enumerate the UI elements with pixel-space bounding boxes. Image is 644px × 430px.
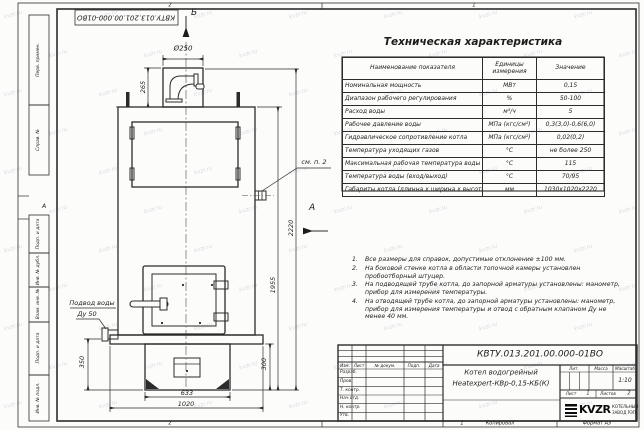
drawing-sheet: kvzr.rukvzr.rukvzr.rukvzr.rukvzr.rukvzr.… xyxy=(0,0,644,430)
dim-chimney-diameter: Ø250 xyxy=(174,46,193,53)
spec-unit: °С xyxy=(483,158,537,171)
spec-row: Диапазон рабочего регулирования%50-100 xyxy=(343,93,605,106)
tb-col-list: Лист xyxy=(354,363,365,367)
spec-value: 50-100 xyxy=(537,93,605,106)
tb-mass-label: Масса xyxy=(594,366,607,370)
kvzr-logo-text: KVZR xyxy=(579,404,610,415)
spec-row: Габариты котла (длинна х ширина х высота… xyxy=(343,184,605,197)
tb-scale-value: 1:10 xyxy=(618,378,631,384)
spec-value: 1030х1020х2220 xyxy=(537,184,605,197)
zone-top-left: 2 xyxy=(168,4,171,9)
callout-water-supply: Подвод воды xyxy=(69,300,114,307)
tb-col-podp: Подп. xyxy=(408,363,421,367)
spec-header-name: Наименование показателя xyxy=(343,58,483,80)
spec-name: Температура воды (вход/выход) xyxy=(343,171,483,184)
title-block-doc-number: КВТУ.013.201.00.000-01ВО xyxy=(477,351,603,360)
zone-bottom-left: 2 xyxy=(168,422,171,427)
spec-row: Температура воды (вход/выход)°С70/95 xyxy=(343,171,605,184)
chimney-elbow xyxy=(170,76,194,100)
spec-value: 0,02(0,2) xyxy=(537,132,605,145)
tb-sheet-label: Лист xyxy=(566,392,577,396)
logo-subtitle-line2: ЗАВОД РЭП xyxy=(612,411,636,415)
note-number: 4. xyxy=(352,298,365,321)
callout-water-dn: Ду 50 xyxy=(77,311,96,318)
spec-unit: °С xyxy=(483,145,537,158)
callout-see-note: см. п. 2 xyxy=(301,159,326,166)
spec-table-title: Техническая характеристика xyxy=(384,37,562,48)
product-name-line2: Heatexpert-КВр-0,15-КБ(К) xyxy=(452,381,549,388)
note-text: На подводящей трубе котла, до запорной а… xyxy=(365,281,626,297)
spec-unit: МВт xyxy=(483,80,537,93)
spec-unit: °С xyxy=(483,171,537,184)
foot-right xyxy=(216,379,229,389)
tb-col-docum: № докум. xyxy=(375,363,396,367)
side-field: Подп. и дата xyxy=(37,333,42,364)
spec-row: Номинальная мощностьМВт0,15 xyxy=(343,80,605,93)
tb-sign-row: Н. контр. xyxy=(340,406,361,410)
dim-pedestal-height: 300 xyxy=(261,358,268,370)
spec-name: Температура уходящих газов xyxy=(343,145,483,158)
tb-scale-label: Масштаб xyxy=(615,366,635,370)
tb-col-izm: Изм. xyxy=(340,363,350,367)
tb-sheets-value: 2 xyxy=(627,392,630,397)
spec-name: Диапазон рабочего регулирования xyxy=(343,93,483,106)
zone-top-right: 1 xyxy=(472,4,475,9)
side-field: Подп. и дата xyxy=(37,219,42,250)
tb-sheets-label: Листов xyxy=(600,392,616,396)
tb-sheet-value: 1 xyxy=(586,392,589,397)
spec-row: Температура уходящих газов°Сне более 250 xyxy=(343,145,605,158)
spec-name: Расход воды xyxy=(343,106,483,119)
kvzr-logo-icon xyxy=(565,404,577,417)
spec-unit: % xyxy=(483,93,537,106)
spec-row: Максимальная рабочая температура воды°С1… xyxy=(343,158,605,171)
spec-value: 115 xyxy=(537,158,605,171)
note-item: 3.На подводящей трубе котла, до запорной… xyxy=(352,281,626,297)
note-text: Все размеры для справок, допустимые откл… xyxy=(365,256,566,264)
note-text: На отводящей трубе котла, до запорной ар… xyxy=(365,298,626,321)
product-name-line1: Котел водогрейный xyxy=(464,370,538,377)
zone-bottom-right: 1 xyxy=(460,422,463,427)
spec-header-row: Наименование показателя Единицы измерени… xyxy=(343,58,605,80)
centerlines xyxy=(186,42,274,394)
footer-format: Формат А3 xyxy=(583,422,611,427)
dim-chimney-height: 265 xyxy=(140,81,147,93)
lifting-pin-left xyxy=(126,92,130,107)
spec-unit: мм xyxy=(483,184,537,197)
spec-row: Гидравлическое сопротивление котлаМПа (к… xyxy=(343,132,605,145)
tb-sign-row: Разраб. xyxy=(340,371,357,375)
boiler-outline xyxy=(102,68,266,390)
spec-table: Наименование показателя Единицы измерени… xyxy=(342,57,605,197)
notes-block: 1.Все размеры для справок, допустимые от… xyxy=(352,256,626,322)
note-text: На боковой стенке котла в области топочн… xyxy=(365,265,626,281)
spec-row: Расход водым³/ч5 xyxy=(343,106,605,119)
spec-value: 0,15 xyxy=(537,80,605,93)
spec-name: Максимальная рабочая температура воды xyxy=(343,158,483,171)
tb-sign-row: Нач.отд. xyxy=(340,397,359,401)
note-item: 1.Все размеры для справок, допустимые от… xyxy=(352,256,626,264)
side-field: Взам. инв. № xyxy=(37,289,42,320)
spec-value: 5 xyxy=(537,106,605,119)
spec-unit: МПа (кгс/см²) xyxy=(483,119,537,132)
note-item: 4.На отводящей трубе котла, до запорной … xyxy=(352,298,626,321)
dim-base-width: 1020 xyxy=(178,401,195,408)
side-field: Инв. № дубл. xyxy=(37,255,42,286)
dim-pedestal-width: 633 xyxy=(181,390,193,397)
doc-number-top: КВТУ.013.201.00.000-01ВО xyxy=(77,14,175,21)
dim-body-height: 1955 xyxy=(270,277,277,294)
side-field: Инв. № подл. xyxy=(37,382,42,413)
tb-sign-row: Т. контр. xyxy=(340,389,360,393)
side-field: Справ. № xyxy=(37,129,42,151)
spec-unit: МПа (кгс/см²) xyxy=(483,132,537,145)
logo-subtitle-line1: КОТЕЛЬНЫЙ xyxy=(612,405,638,409)
spec-name: Номинальная мощность xyxy=(343,80,483,93)
spec-row: Рабочее давление водыМПа (кгс/см²)0,3(3,… xyxy=(343,119,605,132)
leaders xyxy=(70,16,331,329)
tb-lit-label: Лит. xyxy=(569,366,579,370)
spec-name: Рабочее давление воды xyxy=(343,119,483,132)
spec-unit: м³/ч xyxy=(483,106,537,119)
note-number: 2. xyxy=(352,265,365,281)
tb-sign-row: Утв. xyxy=(340,414,349,418)
spec-value: не более 250 xyxy=(537,145,605,158)
tb-sign-row: Пров. xyxy=(340,380,353,384)
side-field: Перв. примен. xyxy=(37,43,42,77)
spec-header-value: Значение xyxy=(537,58,605,80)
footer-copied: Копировал xyxy=(486,422,515,427)
view-b-label: Б xyxy=(191,9,197,18)
spec-value: 0,3(3,0)-0,6(6,0) xyxy=(537,119,605,132)
note-number: 3. xyxy=(352,281,365,297)
note-item: 2.На боковой стенке котла в области топо… xyxy=(352,265,626,281)
tb-col-data: Дата xyxy=(429,363,440,367)
dim-stub-height: 350 xyxy=(79,356,86,368)
note-number: 1. xyxy=(352,256,365,264)
view-a-label: А xyxy=(309,204,315,213)
spec-value: 70/95 xyxy=(537,171,605,184)
spec-name: Гидравлическое сопротивление котла xyxy=(343,132,483,145)
spec-header-unit: Единицы измерения xyxy=(483,58,537,80)
zone-side-letter: А xyxy=(42,204,46,210)
lifting-pin-right xyxy=(237,92,241,107)
dim-total-height: 2220 xyxy=(288,220,295,237)
spec-name: Габариты котла (длинна х ширина х высота… xyxy=(343,184,483,197)
foot-left xyxy=(146,379,159,389)
